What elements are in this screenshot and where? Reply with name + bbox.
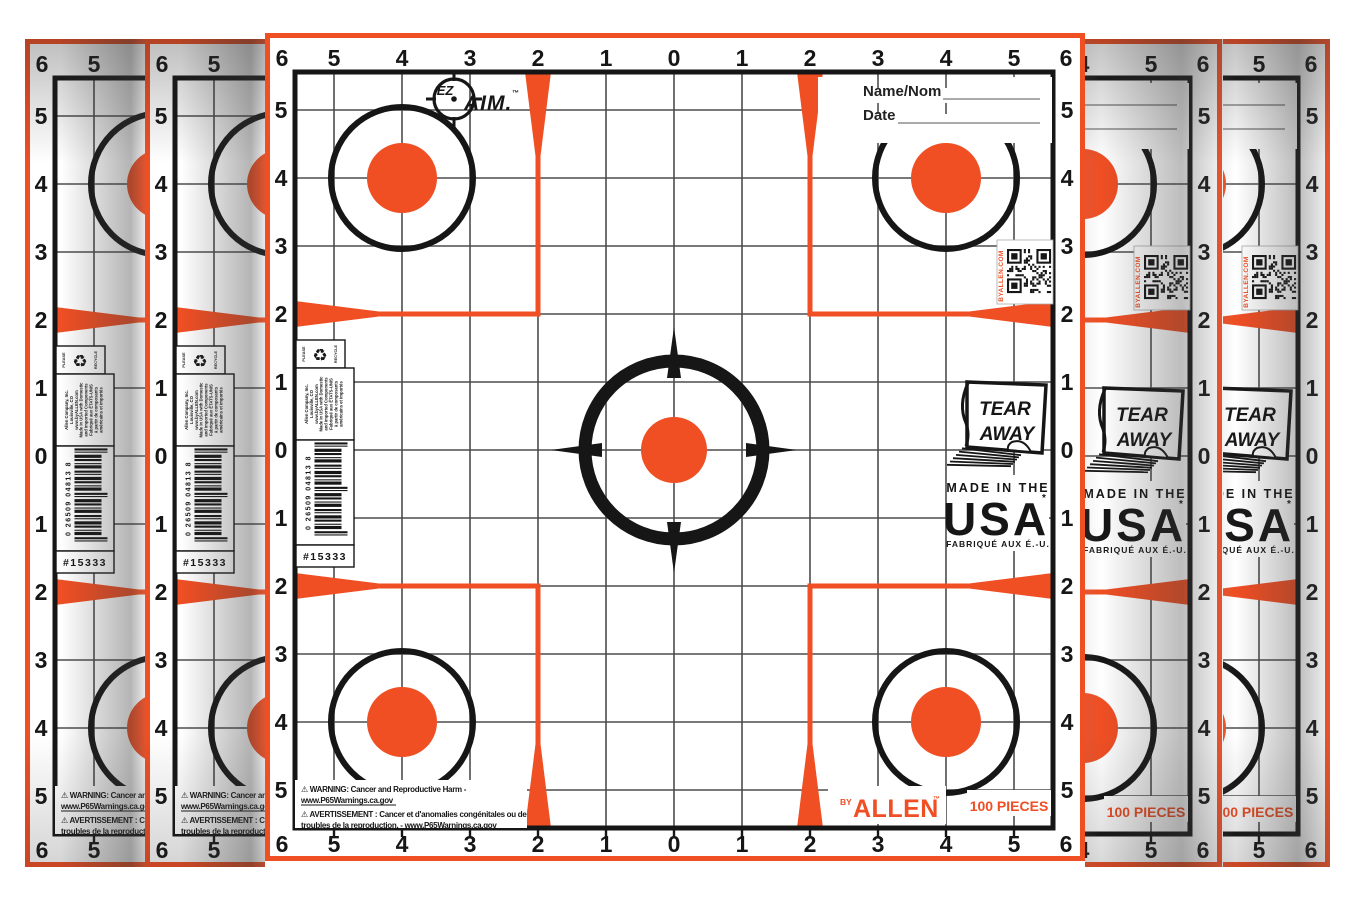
grid-number-bottom: 5 [1253,837,1266,863]
company-info-box: Allen Company, Inc.Louisville, COwww.byA… [176,374,234,446]
sheet-artwork: 5555444433332222111100001111222233334444… [265,33,1085,861]
grid-number-right: 3 [1198,239,1211,265]
grid-number-top: 2 [804,45,817,71]
recycle-icon: ♻ [192,352,207,371]
barcode-bar [195,503,222,505]
grid-number-right: 5 [1061,777,1074,803]
barcode-bar [315,442,348,444]
grid-number-top: 5 [1145,51,1158,77]
barcode-bar [315,509,342,511]
barcode-bar [75,521,102,524]
grid-number-left: 1 [155,511,168,537]
barcode-bar [315,471,342,474]
grid-number-right: 4 [1306,171,1319,197]
ezaim-trademark: ™ [512,90,519,97]
upc-digits: 0 26509 04813 8 [66,461,73,536]
grid-number-bottom: 4 [396,831,409,857]
barcode-bar [195,499,222,502]
name-date-bg [1223,83,1297,149]
qr-caption: BYALLEN.COM [998,250,1005,301]
grid-number-right: 4 [1061,165,1074,191]
grid-number-right: 5 [1306,103,1319,129]
barcode-bar [75,540,108,541]
sheet-artwork: 5555444433332222111100001111222233334444… [25,39,145,867]
barcode-bar [315,459,342,462]
barcode-bar [195,448,228,450]
sheet-main: 5555444433332222111100001111222233334444… [265,33,1085,861]
fabrique-text: FABRIQUÉ AUX É.-U. [1223,545,1295,555]
qr-block: BYALLEN.COM [997,240,1053,304]
grid-number-bottom: 5 [328,831,341,857]
barcode-bar [75,503,102,505]
barcode-bar [195,532,222,535]
recycle-recycle-text: RECYCLE [334,344,338,363]
ezaim-aim-text: AIM. [463,92,512,115]
item-number-box: #15333 [56,551,114,573]
barcode-bar [315,490,348,491]
tear-away-text-2: AWAY [1224,430,1282,451]
grid-number-left: 5 [35,783,48,809]
grid-number-left: 2 [155,579,168,605]
warning-fr-line2: troubles de la reproduction. - www.P65Wa… [181,827,265,836]
grid-number-bottom: 3 [464,831,477,857]
grid-number-bottom: 2 [532,831,545,857]
barcode-bar [315,487,348,489]
grid-number-corner: 6 [1060,45,1073,71]
grid-number-left: 4 [275,165,288,191]
upc-digits: 0 26509 04813 8 [306,455,313,530]
grid-number-corner: 6 [1197,51,1210,77]
barcode-bar [75,530,102,531]
barcode-bar [315,515,342,518]
barcode-bar [315,524,342,525]
tear-away-text-1: TEAR [979,399,1031,420]
tear-away-text-2: AWAY [1116,430,1174,451]
barcode-bar [195,463,222,464]
barcode-bar [195,496,228,497]
grid-number-right: 1 [1061,369,1074,395]
grid-number-bottom: 5 [1008,831,1021,857]
grid-number-left: 1 [275,369,288,395]
recycle-recycle-text: RECYCLE [94,350,98,369]
grid-number-right: 2 [1061,301,1074,327]
recycle-please-text: PLEASE [182,352,186,368]
grid-number-corner: 6 [1305,51,1318,77]
usa-text: USA [1085,499,1186,551]
grid-number-bottom: 5 [1145,837,1158,863]
crosshair-center [641,417,707,483]
bullseye-center [911,687,981,757]
grid-number-right: 3 [1061,233,1074,259]
pieces-text: 100 PIECES [1223,804,1293,820]
barcode-bar [315,504,342,507]
warning-fr-line2: troubles de la reproduction. - www.P65Wa… [301,821,497,830]
barcode-bar [75,471,102,473]
barcode-bar [195,537,228,539]
grid-number-left: 2 [155,307,168,333]
name-date-box: Name/NomDate [818,77,1052,143]
pieces-badge: 100 PIECES [967,790,1051,816]
grid-number-top: 3 [872,45,885,71]
barcode-bar [75,510,102,513]
grid-number-right: 3 [1061,641,1074,667]
barcode-bar [195,488,222,491]
made-in-usa-block: MADE IN THEUSA*FABRIQUÉ AUX É.-U. [943,475,1050,551]
pieces-text: 100 PIECES [970,798,1049,814]
usa-text: USA [1223,499,1294,551]
grid-number-top: 2 [532,45,545,71]
grid-number-left: 0 [155,443,168,469]
grid-number-corner: 6 [276,831,289,857]
grid-number-top: 5 [88,51,101,77]
bullseye-center [367,143,437,213]
item-number-text: #15333 [303,551,347,563]
grid-number-left: 2 [35,307,48,333]
target-sheet: 5555444433332222111100001111222233334444… [1223,39,1330,867]
recycle-please-text: PLEASE [62,352,66,368]
grid-number-corner: 6 [156,51,169,77]
grid-number-top: 5 [1253,51,1266,77]
name-date-box: Name/NomDate [1085,83,1189,149]
grid-number-left: 2 [275,301,288,327]
item-number-text: #15333 [183,557,227,569]
grid-number-left: 2 [275,573,288,599]
barcode-bar [315,482,342,485]
target-sheet: 5555444433332222111100001111222233334444… [25,39,145,867]
grid-number-right: 2 [1198,307,1211,333]
qr-block: BYALLEN.COM [1242,246,1298,310]
grid-number-corner: 6 [36,837,49,863]
barcode-bar [75,488,102,491]
grid-number-corner: 6 [156,837,169,863]
barcode-bar [195,510,222,513]
warning-en-line2: www.P65Warnings.ca.gov [300,796,394,805]
grid-number-left: 5 [155,103,168,129]
qr-caption: BYALLEN.COM [1135,256,1142,307]
barcode-bar [315,520,342,522]
grid-number-bottom: 4 [1085,837,1090,863]
warning-fr-line1: ⚠ AVERTISSEMENT : Cancer et d'anomalies … [181,816,265,825]
grid-number-left: 0 [35,443,48,469]
barcode-block: 0 26509 04813 8 [56,446,114,551]
usa-mark: * [1042,493,1046,504]
grid-number-left: 3 [155,239,168,265]
barcode-bar [315,453,342,455]
grid-number-top: 5 [208,51,221,77]
allen-trademark: ™ [933,796,940,803]
barcode-bar [315,534,348,535]
grid-number-corner: 6 [1060,831,1073,857]
bullseye-center [367,687,437,757]
grid-number-bottom: 2 [804,831,817,857]
barcode-bar [75,474,102,475]
grid-number-left: 3 [35,239,48,265]
tear-away-text-1: TEAR [1224,405,1276,426]
barcode-bar [195,477,222,480]
target-sheet: 5555444433332222111100001111222233334444… [1085,39,1222,867]
item-number-text: #15333 [63,557,107,569]
barcode-bar [195,481,222,483]
grid-number-left: 1 [155,375,168,401]
name-date-box: Name/NomDate [1223,83,1297,149]
barcode-bar [315,526,342,529]
grid-number-right: 2 [1306,579,1319,605]
barcode-block: 0 26509 04813 8 [176,446,234,551]
allen-logo: BYALLEN™ [828,786,946,824]
grid-number-top: 5 [1008,45,1021,71]
barcode-bar [195,540,228,541]
grid-number-top: 3 [464,45,477,71]
grid-number-left: 4 [275,709,288,735]
made-in-usa-block: MADE IN THEUSA*FABRIQUÉ AUX É.-U. [1223,481,1295,557]
barcode-bar [315,465,342,467]
recycle-box: PLEASERECYCLE♻ [296,340,345,368]
grid-number-right: 1 [1198,511,1211,537]
company-line: américains et importés [98,387,103,433]
grid-number-left: 4 [155,715,168,741]
date-field-label: Date [863,107,896,124]
grid-number-bottom: 0 [668,831,681,857]
grid-number-right: 3 [1198,647,1211,673]
barcode-bar [315,446,348,447]
grid-number-left: 2 [35,579,48,605]
barcode-bar [195,485,222,486]
grid-number-corner: 6 [1305,837,1318,863]
grid-number-right: 2 [1061,573,1074,599]
sheet-strip-2: 5555444433332222111100001111222233334444… [145,39,265,867]
grid-number-left: 4 [155,171,168,197]
barcode-bar [195,455,222,458]
grid-number-left: 1 [35,511,48,537]
grid-number-bottom: 1 [600,831,613,857]
grid-number-bottom: 5 [88,837,101,863]
name-date-bg [1085,83,1189,149]
barcode-bar [195,452,228,453]
grid-number-right: 5 [1198,783,1211,809]
barcode-bar [315,497,342,499]
recycle-recycle-text: RECYCLE [214,350,218,369]
tear-away-text-2: AWAY [979,424,1037,445]
made-in-usa-block: MADE IN THEUSA*FABRIQUÉ AUX É.-U. [1085,481,1187,557]
barcode-bar [195,530,222,531]
target-product-image: 5555444433332222111100001111222233334444… [0,0,1350,900]
tear-away-icon: TEARAWAY [1223,388,1291,472]
barcode-bar [75,496,108,497]
target-sheet: 5555444433332222111100001111222233334444… [145,39,265,867]
barcode-bar [75,485,102,486]
grid-number-top: 4 [396,45,409,71]
grid-number-corner: 6 [36,51,49,77]
grid-number-right: 2 [1306,307,1319,333]
barcode-bar [75,463,102,464]
barcode-bar [75,448,108,450]
grid-number-left: 3 [155,647,168,673]
barcode-bar [315,512,342,513]
grid-number-top: 5 [328,45,341,71]
barcode-block: 0 26509 04813 8 [296,440,354,545]
barcode-bar [315,457,342,458]
grid-number-left: 0 [275,437,288,463]
barcode-bar [195,465,222,468]
barcode-bar [315,468,342,469]
grid-number-right: 4 [1198,715,1211,741]
prop65-warnings: ⚠ WARNING: Cancer and Reproductive Harm … [175,786,265,836]
grid-number-right: 4 [1061,709,1074,735]
qr-block: BYALLEN.COM [1134,246,1190,310]
pieces-badge: 100 PIECES [1223,796,1296,822]
tear-away-text-1: TEAR [1116,405,1168,426]
grid-number-right: 3 [1306,239,1319,265]
grid-number-right: 5 [1061,97,1074,123]
grid-number-right: 0 [1306,443,1319,469]
warning-en-line1: ⚠ WARNING: Cancer and Reproductive Harm … [181,791,265,800]
qr-caption: BYALLEN.COM [1243,256,1250,307]
grid-number-right: 2 [1198,579,1211,605]
barcode-bar [315,449,342,452]
pieces-text: 100 PIECES [1107,804,1186,820]
item-number-box: #15333 [176,551,234,573]
grid-number-bottom: 4 [940,831,953,857]
warning-fr-line2: troubles de la reproduction. - www.P65Wa… [61,827,145,836]
grid-number-right: 1 [1198,375,1211,401]
barcode-bar [315,493,342,496]
fabrique-text: FABRIQUÉ AUX É.-U. [946,539,1050,549]
warning-en-line1: ⚠ WARNING: Cancer and Reproductive Harm … [61,791,145,800]
prop65-warnings: ⚠ WARNING: Cancer and Reproductive Harm … [295,780,527,830]
grid-number-bottom: 1 [736,831,749,857]
grid-number-right: 5 [1306,783,1319,809]
name-field-label: Name/Nom [863,83,941,100]
barcode-bar [195,471,222,473]
company-info-box: Allen Company, Inc.Louisville, COwww.byA… [296,368,354,440]
barcode-bar [195,518,222,519]
barcode-bar [75,537,108,539]
barcode-bar [75,455,102,458]
target-sheet: 5555444433332222111100001111222233334444… [265,33,1085,861]
grid-number-left: 5 [275,97,288,123]
company-line: américains et importés [338,381,343,427]
company-info-box: Allen Company, Inc.Louisville, COwww.byA… [56,374,114,446]
pieces-badge: 100 PIECES [1104,796,1188,822]
barcode-bar [75,493,108,495]
upc-digits: 0 26509 04813 8 [186,461,193,536]
sheet-artwork: 5555444433332222111100001111222233334444… [1085,39,1222,867]
fabrique-text: FABRIQUÉ AUX É.-U. [1085,545,1187,555]
prop65-warnings: ⚠ WARNING: Cancer and Reproductive Harm … [55,786,145,836]
grid-number-left: 1 [35,375,48,401]
grid-number-left: 4 [35,715,48,741]
recycle-please-text: PLEASE [302,346,306,362]
grid-number-bottom: 5 [208,837,221,863]
grid-number-left: 4 [35,171,48,197]
barcode-bar [75,526,102,528]
warning-fr-line1: ⚠ AVERTISSEMENT : Cancer et d'anomalies … [301,810,527,819]
grid-number-left: 5 [155,783,168,809]
allen-by-text: BY [840,797,852,807]
warning-en-line2: www.P65Warnings.ca.gov [60,802,145,811]
warning-en-line1: ⚠ WARNING: Cancer and Reproductive Harm … [301,785,467,794]
grid-number-right: 1 [1061,505,1074,531]
recycle-icon: ♻ [312,346,327,365]
grid-number-right: 3 [1306,647,1319,673]
barcode-bar [315,479,342,480]
recycle-box: PLEASERECYCLE♻ [56,346,105,374]
barcode-bar [75,481,102,483]
usa-mark: * [1287,499,1291,510]
barcode-bar [75,499,102,502]
grid-number-corner: 6 [1197,837,1210,863]
grid-number-left: 3 [35,647,48,673]
barcode-bar [195,515,222,517]
barcode-bar [75,532,102,535]
warning-fr-line1: ⚠ AVERTISSEMENT : Cancer et d'anomalies … [61,816,145,825]
barcode-bar [75,515,102,517]
barcode-bar [195,526,222,528]
sheet-strip-1: 5555444433332222111100001111222233334444… [25,39,145,867]
grid-number-right: 0 [1198,443,1211,469]
grid-number-right: 0 [1061,437,1074,463]
barcode-bar [195,521,222,524]
grid-number-left: 5 [275,777,288,803]
grid-number-top: 4 [1085,51,1090,77]
grid-number-left: 3 [275,233,288,259]
grid-number-left: 1 [275,505,288,531]
usa-text: USA [943,493,1049,545]
grid-number-top: 1 [600,45,613,71]
grid-number-right: 5 [1198,103,1211,129]
barcode-bar [315,502,342,503]
sheet-strip-4: 5555444433332222111100001111222233334444… [1085,39,1223,867]
barcode-bar [75,477,102,480]
barcode-bar [75,459,102,461]
barcode-bar [75,465,102,468]
company-line: américains et importés [218,387,223,433]
barcode-bar [195,508,222,509]
grid-number-right: 4 [1306,715,1319,741]
barcode-bar [195,493,228,495]
barcode-bar [75,508,102,509]
grid-number-top: 0 [668,45,681,71]
recycle-icon: ♻ [72,352,87,371]
warning-en-line2: www.P65Warnings.ca.gov [180,802,265,811]
grid-number-right: 1 [1306,375,1319,401]
barcode-bar [75,518,102,519]
barcode-bar [315,531,348,533]
barcode-bar [195,459,222,461]
barcode-bar [75,452,108,453]
item-number-box: #15333 [296,545,354,567]
grid-number-top: 1 [736,45,749,71]
barcode-bar [315,475,342,477]
grid-number-right: 1 [1306,511,1319,537]
grid-number-left: 3 [275,641,288,667]
usa-mark: * [1179,499,1183,510]
sheet-artwork: 5555444433332222111100001111222233334444… [145,39,265,867]
grid-number-bottom: 3 [872,831,885,857]
sheet-strip-5: 5555444433332222111100001111222233334444… [1223,39,1330,867]
grid-number-corner: 6 [276,45,289,71]
bullseye-center [911,143,981,213]
grid-number-left: 5 [35,103,48,129]
ezaim-ez-text: EZ [437,83,455,98]
sheet-artwork: 5555444433332222111100001111222233334444… [1223,39,1330,867]
barcode-bar [195,474,222,475]
recycle-box: PLEASERECYCLE♻ [176,346,225,374]
grid-number-right: 4 [1198,171,1211,197]
grid-number-top: 4 [940,45,953,71]
allen-name-text: ALLEN [853,795,939,823]
